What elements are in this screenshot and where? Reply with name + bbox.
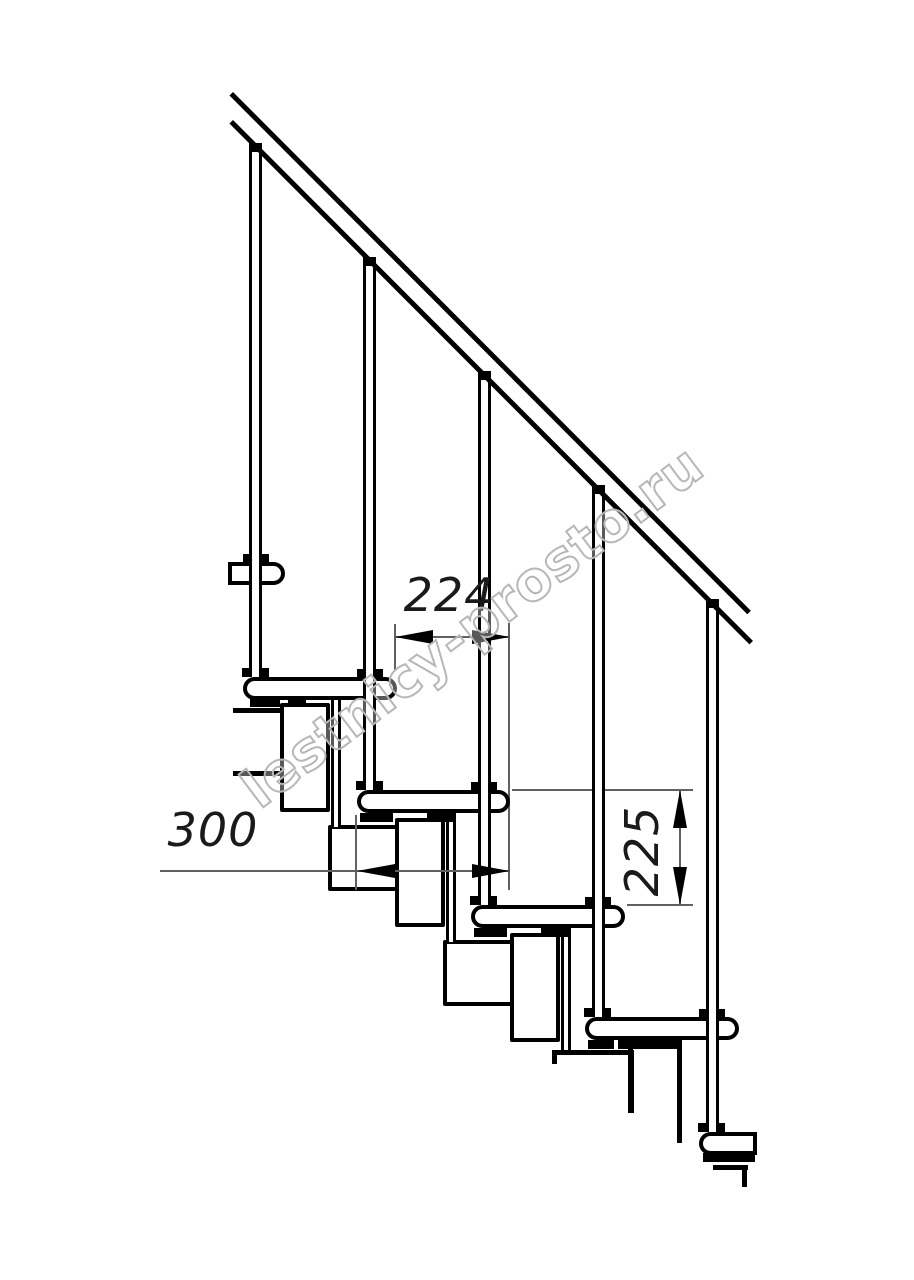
- handrail-inner-line: [229, 120, 753, 644]
- baluster-5: [706, 608, 719, 1132]
- module-w6-right-line: [742, 1165, 747, 1187]
- tread-2-foot-a: [250, 698, 280, 707]
- dim-300-arrow-left: [357, 864, 395, 878]
- module-w5-left-line: [552, 1050, 557, 1064]
- module-box-w3: [328, 825, 403, 891]
- dim-224-ext-right-line: [508, 623, 510, 890]
- dim-300-line: [160, 870, 510, 872]
- tread-4-foot-b: [541, 928, 569, 937]
- module-box-w4: [443, 940, 518, 1006]
- tread-3-foot-a: [360, 813, 393, 822]
- dim-300-arrow-right: [472, 864, 510, 878]
- dim-300-ext-left-line: [355, 815, 357, 890]
- module-t5-right-line: [677, 1040, 682, 1143]
- tread-5-foot-b: [618, 1040, 677, 1049]
- module-box-t3: [395, 818, 445, 927]
- baluster-1: [249, 152, 262, 677]
- module-box-t4: [510, 933, 560, 1042]
- dim-225-arrow-up: [673, 790, 687, 828]
- staircase-technical-drawing: 224 300 225 lestnicy-prosto.ru: [0, 0, 914, 1280]
- tread-2-foot-b: [288, 698, 306, 707]
- module-w5-top-line: [552, 1050, 633, 1055]
- dim-225-arrow-down: [673, 867, 687, 905]
- tread-4-foot-a: [474, 928, 507, 937]
- dimension-label-step-rise: 225: [615, 801, 661, 901]
- tread-5-foot-a: [588, 1040, 614, 1049]
- dimension-label-tread-depth: 300: [153, 803, 273, 857]
- connector-tube-3: [446, 813, 456, 942]
- tread-6: [699, 1132, 757, 1155]
- tread-6-foot: [703, 1153, 755, 1162]
- site-watermark: lestnicy-prosto.ru: [229, 457, 690, 831]
- connector-tube-4: [561, 928, 571, 1050]
- module-t5-left-line: [628, 1048, 633, 1113]
- tread-3-foot-b: [427, 813, 455, 822]
